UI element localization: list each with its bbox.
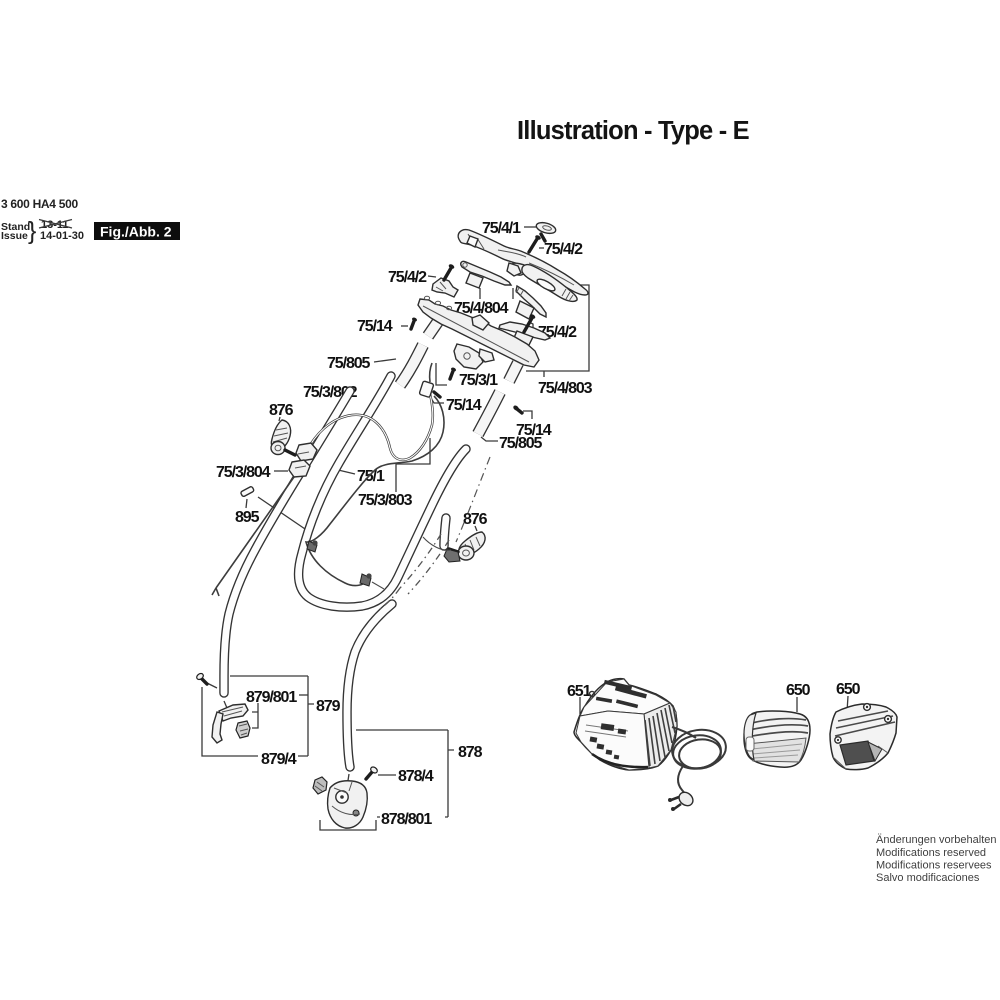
svg-text:75/14: 75/14: [357, 318, 393, 335]
svg-text:75/3/803: 75/3/803: [358, 492, 413, 509]
svg-text:75/3/1: 75/3/1: [459, 372, 498, 389]
svg-text:75/3/804: 75/3/804: [216, 464, 271, 481]
svg-text:75/4/1: 75/4/1: [482, 220, 521, 237]
svg-text:879: 879: [316, 698, 341, 715]
svg-text:878/801: 878/801: [381, 811, 432, 828]
svg-text:651: 651: [567, 683, 592, 700]
svg-text:Salvo modificaciones: Salvo modificaciones: [876, 872, 980, 884]
svg-text:876: 876: [269, 402, 294, 419]
svg-text:Fig./Abb. 2: Fig./Abb. 2: [100, 224, 172, 240]
svg-text:876: 876: [463, 511, 488, 528]
svg-text:75/805: 75/805: [327, 355, 371, 372]
svg-text:650: 650: [786, 682, 811, 699]
svg-text:}: }: [28, 217, 36, 245]
svg-text:75/4/2: 75/4/2: [544, 241, 583, 258]
svg-text:Modifications reserved: Modifications reserved: [876, 847, 986, 859]
svg-text:879/801: 879/801: [246, 689, 297, 706]
svg-text:75/1: 75/1: [357, 468, 385, 485]
svg-text:75/4/2: 75/4/2: [388, 269, 427, 286]
svg-text:879/4: 879/4: [261, 751, 297, 768]
svg-text:878: 878: [458, 744, 483, 761]
svg-text:14-01-30: 14-01-30: [40, 230, 84, 242]
svg-text:3 600 HA4 500: 3 600 HA4 500: [1, 197, 78, 211]
svg-text:895: 895: [235, 509, 260, 526]
svg-text:75/14: 75/14: [446, 397, 482, 414]
svg-text:75/4/803: 75/4/803: [538, 380, 593, 397]
svg-text:Modifications reservees: Modifications reservees: [876, 860, 992, 872]
svg-text:Issue: Issue: [1, 230, 28, 242]
svg-text:Änderungen vorbehalten: Änderungen vorbehalten: [876, 834, 996, 846]
svg-text:650: 650: [836, 681, 861, 698]
svg-text:75/805: 75/805: [499, 435, 543, 452]
svg-text:Illustration - Type - E: Illustration - Type - E: [517, 117, 750, 145]
svg-text:878/4: 878/4: [398, 768, 434, 785]
